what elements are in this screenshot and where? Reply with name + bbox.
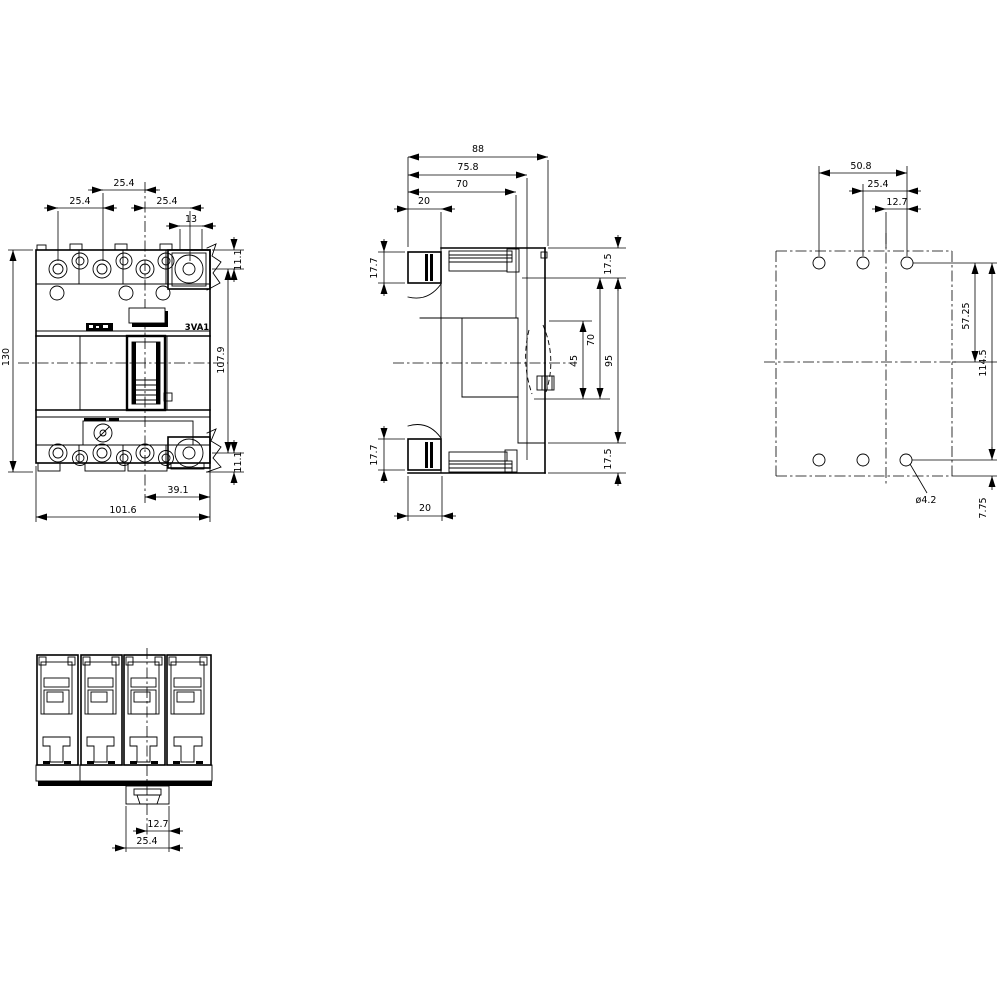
dim-hole-dia: ø4.2 <box>916 495 937 506</box>
dim-front-height: 95 <box>604 355 615 367</box>
bottom-view: 12.7 25.4 <box>36 648 212 852</box>
dim-total-height: 130 <box>1 348 12 366</box>
din-rail-base <box>36 765 212 804</box>
dim-tab-width: 25.4 <box>136 836 157 847</box>
dim-pitch-center: 25.4 <box>113 178 134 189</box>
side-view: 88 75.8 70 20 17.7 17.7 20 <box>369 144 626 521</box>
handle-positions <box>526 325 554 394</box>
dim-bottom-terminal-offset: 11.1 <box>233 451 244 472</box>
dim-handle-pos-70: 70 <box>586 334 597 346</box>
dim-terminal-span-height: 107.9 <box>216 346 227 373</box>
dim-bottom-offset: 17.5 <box>603 448 614 469</box>
dim-depth-handle: 70 <box>456 179 468 190</box>
dim-top-offset: 17.5 <box>603 253 614 274</box>
dim-top-terminal-offset: 11.1 <box>233 249 244 270</box>
dim-terminal-height-bottom: 17.7 <box>369 444 380 465</box>
pole-modules <box>37 655 211 765</box>
lug-terminal-top <box>168 244 221 290</box>
dim-handle-pos-45: 45 <box>569 355 580 367</box>
product-label: 3VA1 <box>185 323 209 333</box>
dim-tab-half: 12.7 <box>147 819 168 830</box>
dim-bottom-offset-rear: 7.75 <box>978 497 989 518</box>
dimension-drawing: 3VA1 <box>0 0 1000 1000</box>
dim-terminal-depth-top: 20 <box>418 196 430 207</box>
toggle-handle <box>127 336 165 410</box>
dim-depth-step: 75.8 <box>457 162 478 173</box>
lug-terminal-bottom <box>168 429 221 472</box>
dim-hole-span: 50.8 <box>850 161 871 172</box>
front-view: 3VA1 <box>1 178 244 522</box>
dim-terminal-width: 13 <box>185 214 197 225</box>
dim-terminal-height-top: 17.7 <box>369 257 380 278</box>
dim-terminal-depth-bottom: 20 <box>419 503 431 514</box>
drawing-canvas: 3VA1 <box>0 0 1000 1000</box>
rear-view: 50.8 25.4 12.7 57.25 114.5 7.75 ø4.2 <box>764 161 997 519</box>
dim-total-depth: 88 <box>472 144 484 155</box>
dim-total-width: 101.6 <box>109 505 136 516</box>
dim-hole-pitch: 25.4 <box>867 179 888 190</box>
side-terminal-bottom <box>408 439 517 472</box>
terminal-screws-top <box>49 253 174 278</box>
dim-hole-half-pitch: 12.7 <box>886 197 907 208</box>
dim-hole-span-v: 114.5 <box>978 349 989 376</box>
dim-pitch-left: 25.4 <box>69 196 90 207</box>
dim-center-to-hole: 57.25 <box>961 302 972 329</box>
dim-lug-center-to-edge: 39.1 <box>167 485 188 496</box>
dim-pitch-right: 25.4 <box>156 196 177 207</box>
mounting-holes <box>813 257 913 466</box>
